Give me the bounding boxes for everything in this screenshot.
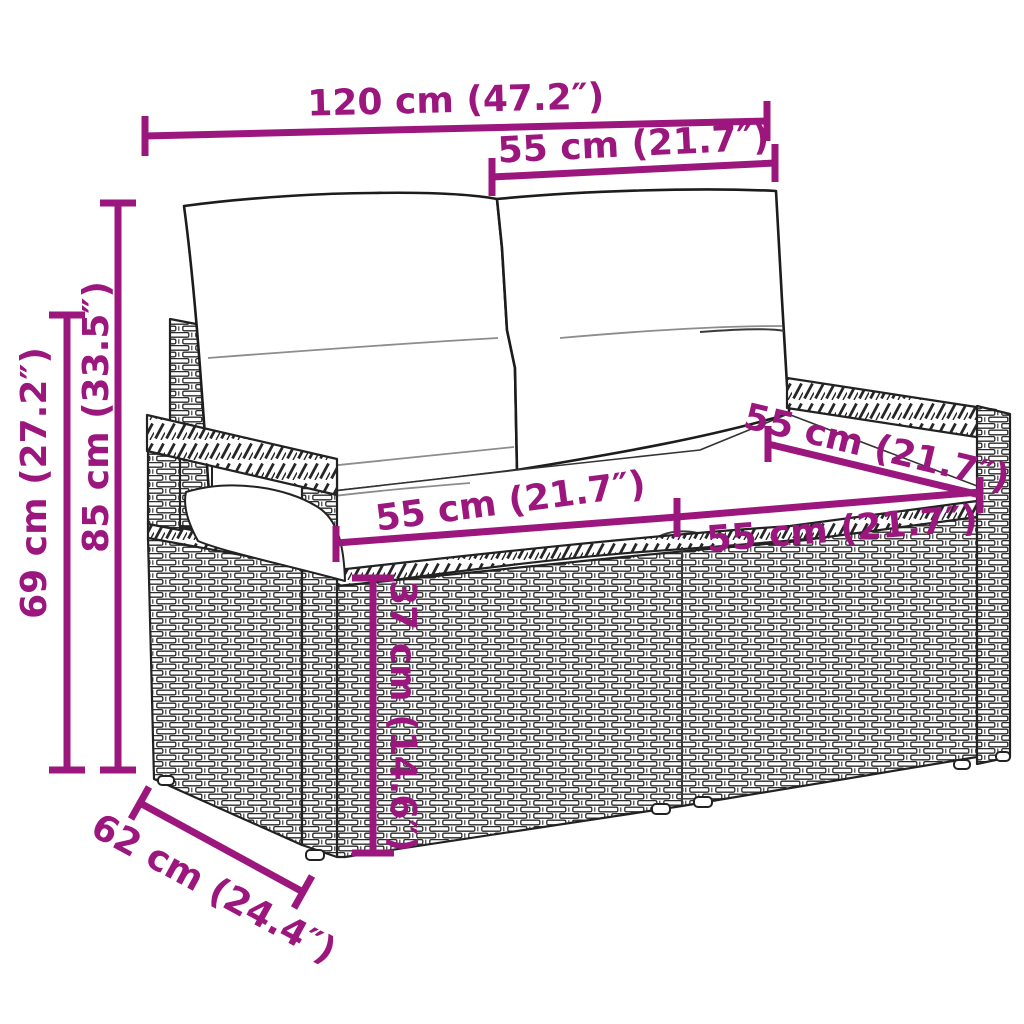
sofa-foot [694, 797, 712, 807]
sofa-foot [996, 752, 1010, 761]
dim-total-height-label: 85 cm (33.5″) [76, 281, 117, 553]
dim-armrest-height: 69 cm (27.2″) [14, 315, 85, 770]
sofa-foot [158, 776, 174, 785]
dim-overall-width-label: 120 cm (47.2″) [307, 76, 605, 124]
dim-armrest-height-label: 69 cm (27.2″) [14, 347, 55, 619]
dim-backrest-width: 55 cm (21.7″) [492, 117, 775, 196]
sofa-foot [652, 804, 670, 814]
base-side-panel [148, 538, 302, 845]
loveseat-diagram-svg: 120 cm (47.2″) 55 cm (21.7″) 85 cm (33.5… [0, 0, 1024, 1024]
sofa-foot [954, 760, 970, 769]
dimension-diagram: 120 cm (47.2″) 55 cm (21.7″) 85 cm (33.5… [0, 0, 1024, 1024]
sofa-foot [306, 850, 324, 860]
dim-total-height: 85 cm (33.5″) [76, 203, 136, 770]
dim-seat-height-label: 37 cm (14.6″) [382, 580, 423, 852]
